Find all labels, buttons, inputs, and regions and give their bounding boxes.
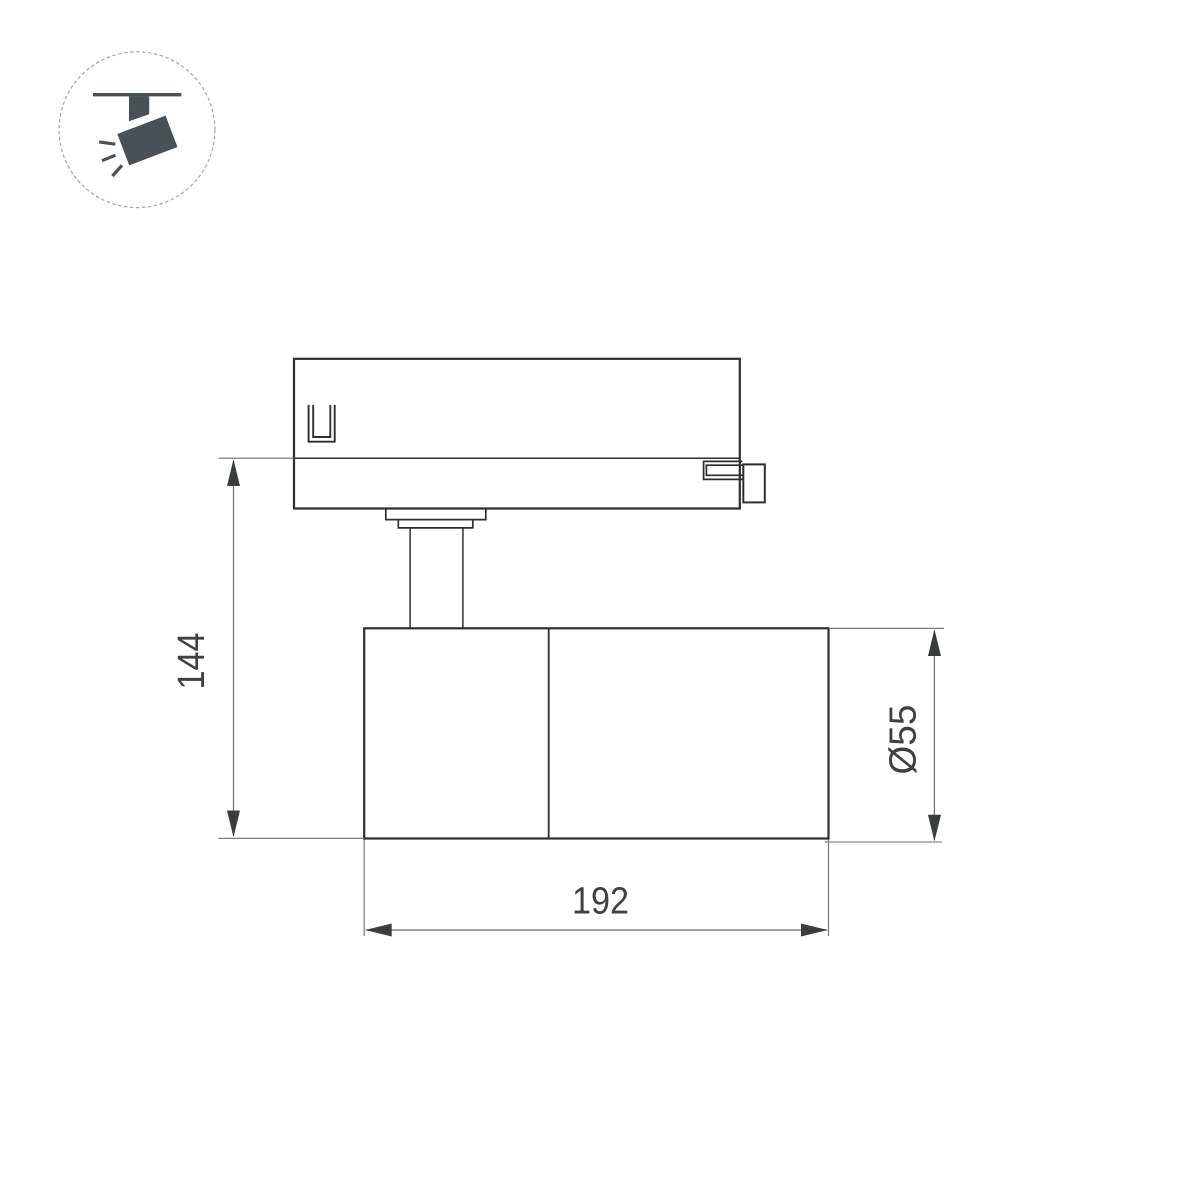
svg-text:144: 144 [171,633,213,690]
svg-text:Ø55: Ø55 [883,705,925,775]
svg-text:192: 192 [572,881,629,923]
